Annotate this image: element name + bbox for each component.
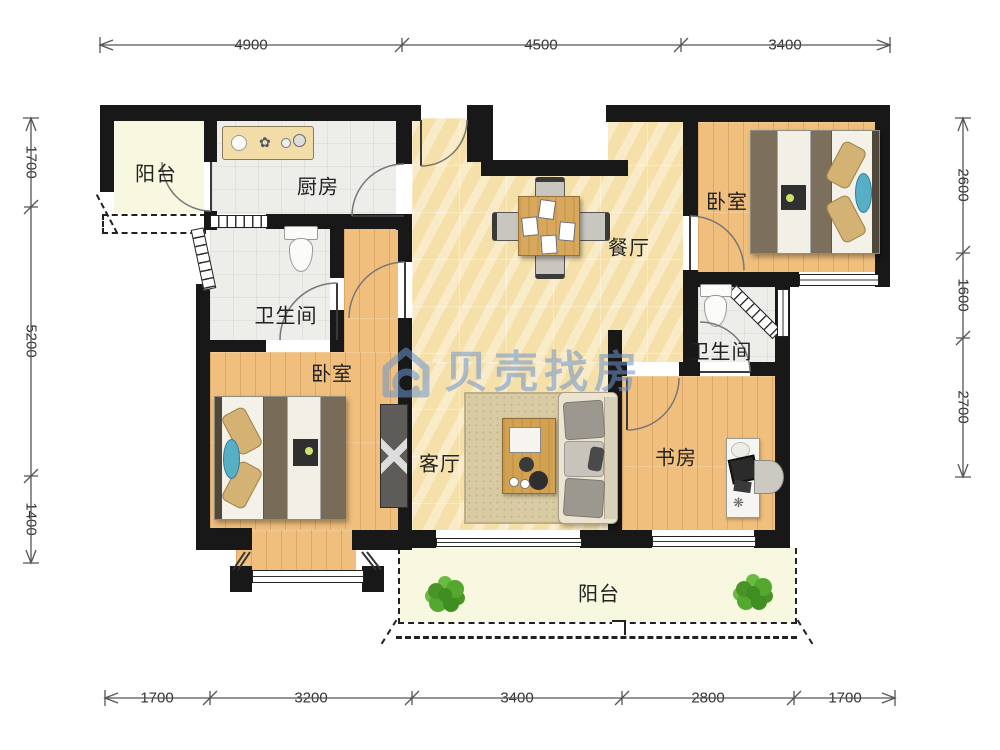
dim-bottom-4: 2800 [686, 690, 729, 707]
bathroom-right-window [777, 289, 789, 337]
wall [330, 310, 344, 352]
wall [330, 214, 344, 278]
balcony-notch-mark [612, 620, 626, 635]
wall [196, 528, 252, 550]
dim-right-2: 1600 [955, 273, 972, 316]
room-label-dining: 餐厅 [608, 232, 650, 261]
dim-bottom-3: 3400 [495, 690, 538, 707]
round-pillow [855, 173, 872, 213]
sofa-cushion [563, 478, 606, 519]
wall [396, 120, 412, 164]
balcony-bottom-outer-rail [396, 636, 797, 639]
room-label-balcony-bottom: 阳台 [578, 578, 620, 607]
plant [746, 586, 760, 600]
dim-left-2: 5200 [23, 319, 40, 362]
bed-tray [781, 185, 806, 210]
wall [606, 105, 890, 122]
dining-chair [535, 253, 565, 279]
wall [467, 105, 493, 162]
dim-bottom-2: 3200 [289, 690, 332, 707]
wall [608, 530, 652, 548]
room-label-bathroom-right: 卫生间 [690, 336, 753, 365]
room-label-living: 客厅 [419, 448, 461, 477]
wall [100, 105, 421, 121]
double-bed [750, 130, 880, 254]
cup-icon [509, 477, 519, 487]
room-label-kitchen: 厨房 [297, 171, 339, 200]
plant-icon: ❋ [733, 495, 744, 511]
tray-dot [305, 447, 313, 455]
tray-dot [786, 194, 794, 202]
place-setting [558, 221, 576, 241]
dim-left-3: 1400 [23, 497, 40, 540]
wall [412, 530, 436, 548]
wall [750, 362, 790, 376]
sink-icon [231, 135, 247, 151]
wall [683, 105, 698, 216]
sofa-cushion [563, 400, 606, 441]
place-setting [538, 199, 556, 220]
room-label-bathroom-left: 卫生间 [255, 300, 318, 329]
room-label-bedroom-right: 卧室 [706, 186, 748, 215]
tray [509, 427, 541, 453]
dim-right-1: 2600 [955, 163, 972, 206]
place-setting [540, 234, 557, 254]
wall [580, 530, 610, 548]
coffee-table [502, 418, 556, 494]
bed-tray [293, 439, 318, 466]
dim-top-1: 4900 [229, 37, 272, 54]
plant [438, 588, 452, 602]
bedroom-right-window [799, 274, 879, 286]
wall [398, 214, 412, 262]
wall [204, 120, 217, 162]
wall [196, 340, 266, 352]
kitchen-counter: ✿ [222, 126, 314, 160]
bedroom-left-vestibule-floor [344, 228, 398, 352]
headboard [215, 397, 222, 519]
room-label-study: 书房 [655, 442, 697, 471]
bedroom-left-baywindow-floor [236, 530, 356, 570]
kettle-icon [529, 471, 548, 490]
living-balcony-slider [436, 538, 582, 547]
dim-top-2: 4500 [519, 37, 562, 54]
dining-chair [578, 212, 610, 241]
bay-window-post [230, 566, 252, 592]
wall [481, 160, 628, 176]
wall [608, 362, 627, 376]
headboard [872, 131, 879, 253]
desk-chair [754, 460, 784, 494]
bay-window-post [362, 566, 384, 592]
dim-left-1: 1700 [23, 140, 40, 183]
floor-plan: ✿ [0, 0, 1000, 750]
dining-table [518, 196, 580, 256]
dim-top-3: 3400 [763, 37, 806, 54]
double-bed [214, 396, 346, 520]
bay-window-front [252, 570, 364, 583]
study-window [652, 536, 756, 547]
balcony-corner-dash [381, 620, 398, 645]
kitchen-window [210, 215, 268, 228]
wall [352, 530, 412, 550]
dim-right-3: 2700 [955, 385, 972, 428]
balcony-corner-dash [797, 620, 814, 645]
place-setting [521, 216, 539, 237]
room-label-bedroom-left: 卧室 [311, 358, 353, 387]
wall [196, 284, 210, 530]
notebook-icon [733, 480, 751, 493]
kettle-icon [519, 457, 534, 472]
cup-icon [520, 479, 530, 489]
entry-recess [493, 86, 608, 162]
room-label-balcony-top: 阳台 [135, 158, 177, 187]
wall [100, 105, 114, 192]
wardrobe [380, 404, 408, 508]
sofa [558, 392, 618, 524]
burner-icon: ✿ [259, 133, 271, 151]
burner-icon [293, 134, 306, 147]
dim-bottom-5: 1700 [823, 690, 866, 707]
round-pillow [223, 439, 240, 479]
sofa-backrest [604, 397, 617, 519]
dim-bottom-1: 1700 [135, 690, 178, 707]
burner-icon [281, 138, 291, 148]
